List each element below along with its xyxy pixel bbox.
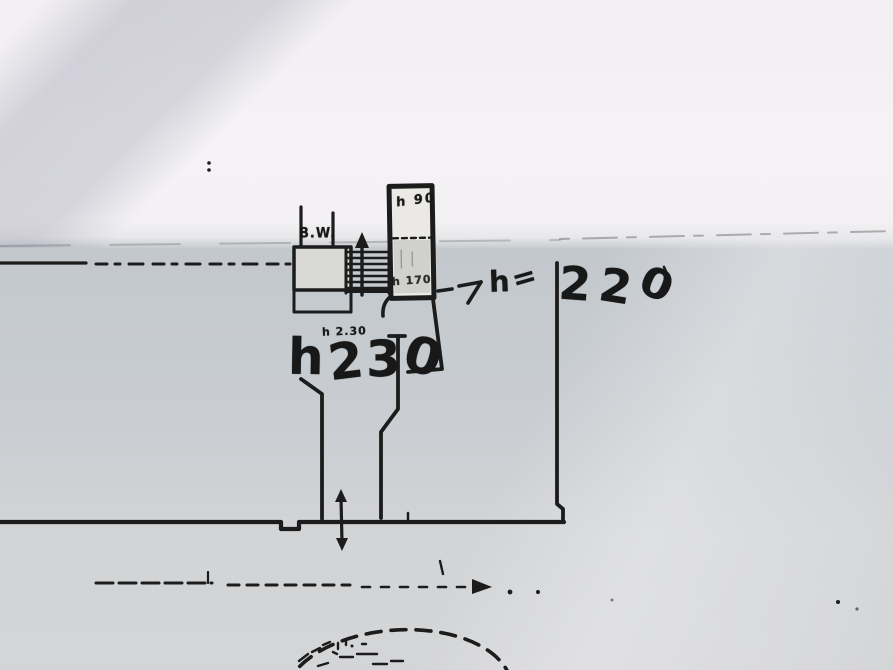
- baseline-wall: [0, 513, 564, 529]
- fold-line: [0, 231, 893, 246]
- room-label: B.W.: [299, 225, 336, 242]
- stamp-ellipse: [280, 622, 516, 670]
- bathroom-room: [294, 207, 351, 312]
- stamp: [280, 622, 516, 670]
- shaft-dashed-line: [393, 238, 430, 239]
- dim-line-left: [0, 263, 290, 264]
- height-note-label: h=: [488, 263, 540, 299]
- ceiling-note-large: h230: [288, 330, 444, 388]
- leader-arrow-icon: [438, 282, 481, 303]
- shaft-foot-wall: [383, 297, 390, 316]
- shaft-lower-label: h 170: [392, 273, 432, 289]
- floor-plan-photo: B.W. h 90 h 170 h 2.30 h230 h= 220: [0, 0, 893, 670]
- dim-tick: [440, 561, 443, 574]
- stamp-marks: [299, 640, 403, 666]
- height-note-value: 220: [559, 258, 682, 310]
- dim-line-bottom: [96, 561, 540, 594]
- dim-arrowhead-icon: [472, 579, 492, 594]
